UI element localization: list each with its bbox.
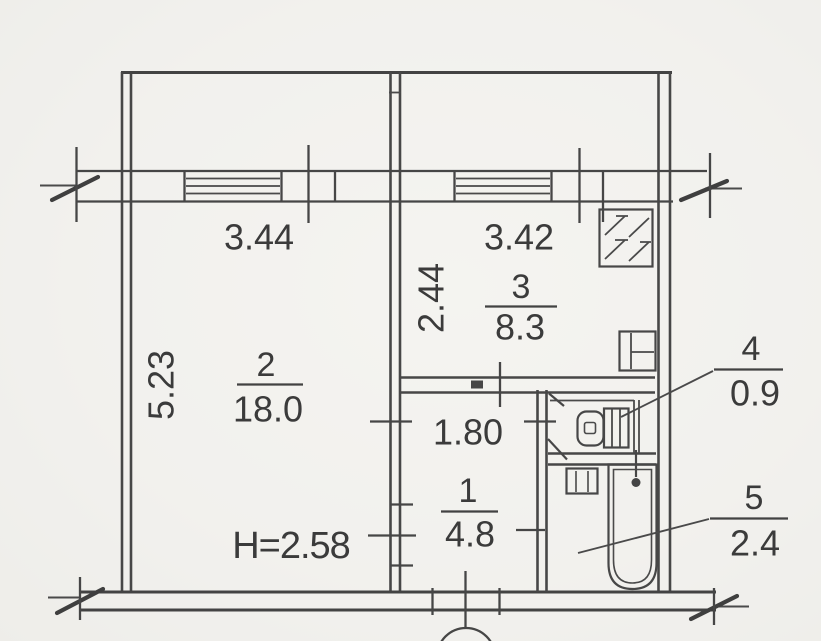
room-area: 2.4 [730, 523, 780, 564]
room-area: 18.0 [233, 389, 303, 430]
room-number: 1 [459, 472, 478, 510]
hall-width-label: 1.80 [433, 412, 503, 453]
scanned-floor-plan-page: 3.44 3.42 5.23 2.44 1.80 H=2.58 2 18.0 3… [0, 0, 821, 641]
room-number: 5 [745, 479, 764, 517]
bathtub-faucet-dot [632, 478, 641, 487]
room-number: 3 [512, 268, 531, 306]
room2-width-label: 3.44 [224, 217, 294, 258]
room-area: 4.8 [445, 514, 495, 555]
room3-depth-label: 2.44 [411, 263, 452, 333]
room-number: 4 [742, 330, 761, 368]
room-area: 0.9 [730, 373, 780, 414]
room-number: 2 [257, 346, 276, 384]
floor-plan-canvas: 3.44 3.42 5.23 2.44 1.80 H=2.58 2 18.0 3… [0, 0, 821, 641]
room-area: 8.3 [495, 307, 545, 348]
room2-depth-label: 5.23 [141, 350, 182, 420]
ceiling-height-label: H=2.58 [232, 525, 350, 567]
door-jamb-mark [471, 381, 483, 389]
room3-width-label: 3.42 [484, 217, 554, 258]
